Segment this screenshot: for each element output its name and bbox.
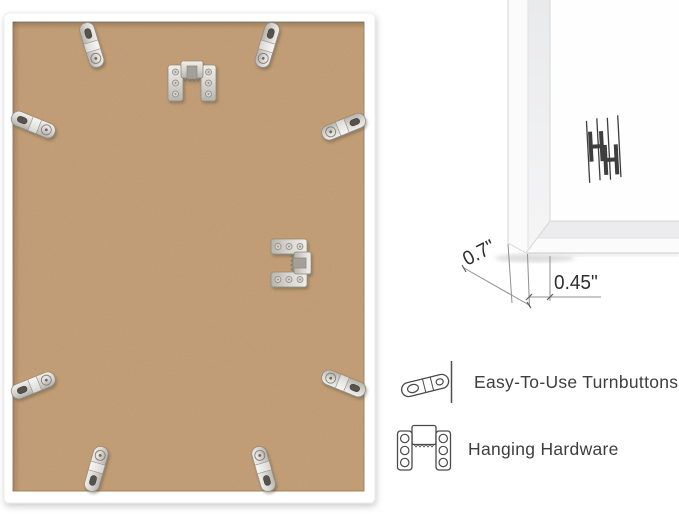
hanging-hardware-icon <box>396 424 452 474</box>
glass-area <box>550 0 679 221</box>
turnbutton-icon <box>394 358 458 406</box>
rail-bottom-band <box>526 238 679 253</box>
board-top-shadow <box>13 22 364 29</box>
rail-face-vertical <box>526 0 550 253</box>
feature-label: Hanging Hardware <box>468 439 619 460</box>
rail-face-horizontal <box>537 221 679 238</box>
feature-label: Easy-To-Use Turnbuttons <box>474 372 678 393</box>
feature-row-hanging-hardware: Hanging Hardware <box>396 424 619 474</box>
rail-outer-side <box>508 0 528 253</box>
face-measurement: 0.45" <box>554 272 598 295</box>
depth-measurement: 0.7" <box>459 235 499 270</box>
product-infographic: 0.7" 0.45" Easy-To-Use Turnbuttons <box>0 0 679 514</box>
rail-shadow <box>532 253 679 257</box>
frame-back-photo <box>0 0 440 514</box>
frame-profile-view: 0.7" 0.45" <box>440 0 679 332</box>
feature-row-turnbuttons: Easy-To-Use Turnbuttons <box>394 358 678 406</box>
board-left-shadow <box>13 22 20 491</box>
